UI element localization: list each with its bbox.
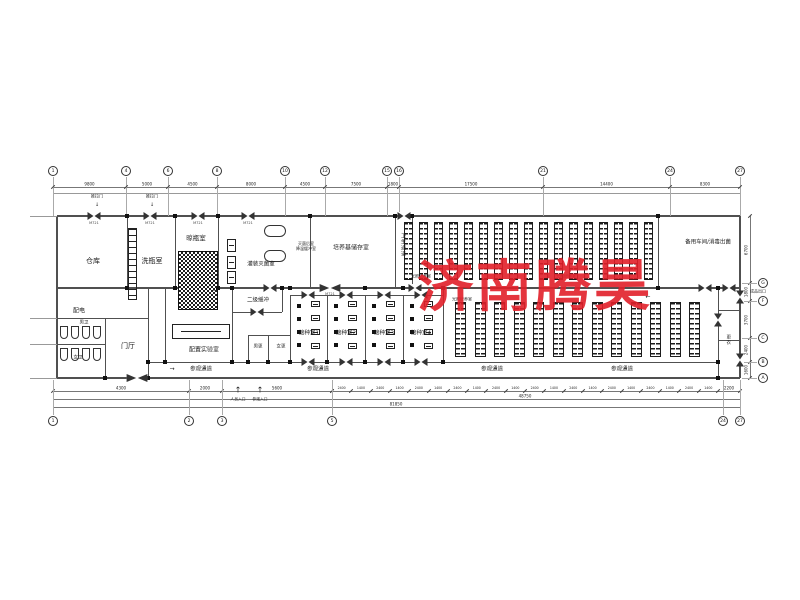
room-label-inoculation-4: 接种室4 [411,331,431,338]
dim-value-bot-s-8: 2400 [492,386,500,390]
shelf-rack-bottom-12 [689,302,700,357]
column-mark [103,376,107,380]
corridor-label-4: 参观通道 [611,367,633,374]
dim-value-bot-left-1: 2000 [200,386,210,391]
door-16 [378,358,391,366]
wc-stall-0-0 [60,326,68,339]
door-tag-4: M721 [243,221,253,225]
dim-value-top-1: 5000 [142,182,152,187]
wall-v-13 [282,288,283,312]
column-mark [216,214,220,218]
room-label-hygiene-corridor: 卫生通道 [400,233,406,257]
axis-bubble-bot-1: 2 [184,416,194,426]
column-mark [173,286,177,290]
wall-v-0 [56,216,58,378]
dim-value-bot-s-1: 1400 [357,386,365,390]
axis-bubble-top-9: 24 [665,166,675,176]
axis-leader-top-10 [740,177,741,216]
room-label-warehouse: 仓库 [86,257,100,265]
axis-bubble-top-10: 27 [735,166,745,176]
corridor-label-2: 参观通道 [307,367,329,374]
wall-v-9 [105,318,106,378]
wall-h-9 [718,310,740,311]
door-9 [251,308,264,316]
room-label-post-sterilize-note: 灭菌后室 降温缓冲室 [296,242,316,252]
filling-bench-2 [227,271,236,284]
corridor-label-1: 参观通道 [190,367,212,374]
wall-v-3 [175,216,176,288]
hatched-equipment-block [178,251,218,310]
axis-bubble-top-3: 8 [212,166,222,176]
dim-value-bot-s-3: 1400 [395,386,403,390]
door-14 [302,358,315,366]
dim-value-right-3: 2400 [744,345,749,355]
wall-v-5 [310,216,311,288]
inoc-equip-2-1 [372,317,376,321]
dim-value-right-1: 1800 [744,287,749,297]
axis-bubble-bot-2: 3 [217,416,227,426]
dim-value-right-0: 6700 [744,244,749,254]
dim-value-bot-s-5: 1400 [434,386,442,390]
label-sliding-door-2: 推拉门 [146,195,158,200]
axis-bubble-top-2: 6 [163,166,173,176]
door-tag-3: M721 [193,221,203,225]
door-v-1 [714,314,722,327]
door-5 [264,284,277,292]
room-label-womens-changing: 女更 [277,344,286,349]
corridor-arrow-2: → [212,288,217,295]
column-mark [125,286,129,290]
axis-bubble-right-2: C [758,333,768,343]
door-4 [398,212,411,220]
room-label-mens-changing: 男更 [254,344,263,349]
dim-total-mid: 48750 [519,394,532,399]
axis-leader-top-9 [670,177,671,216]
column-mark [401,286,405,290]
dim-value-bot-s-4: 2400 [415,386,423,390]
column-mark [401,360,405,364]
shelf-rack-bottom-11 [670,302,681,357]
dim-value-bot-s-14: 2400 [608,386,616,390]
column-mark [716,360,720,364]
axis-leader-bot-5 [740,380,741,415]
inoc-bench-1-3 [348,343,357,349]
axis-leader-right-0 [742,283,757,284]
wall-v-10 [148,288,149,378]
dim-value-bot-s-18: 2400 [685,386,693,390]
wc-stall-1-0 [60,348,68,361]
axis-bubble-top-7: 16 [394,166,404,176]
floor-plan: 仓库 洗瓶室 晾瓶室 灌装灭菌室 灭菌后室 降温缓冲室 培养基储存室 卫生通道 … [0,0,800,600]
label-visitor-entry: 参观入口 [252,398,267,403]
entry-arrow-visitor: ↑ [257,386,264,395]
dim-value-top-5: 7500 [351,182,361,187]
axis-leader-top-8 [543,177,544,216]
axis-bubble-right-0: G [758,278,768,288]
dim-line-bot-3 [53,407,740,408]
room-label-changing: 更衣 [725,335,730,346]
axis-leader-top-7 [399,177,400,216]
inoc-bench-3-3 [424,343,433,349]
dim-value-bot-s-16: 2400 [646,386,654,390]
inoc-equip-3-1 [410,317,414,321]
corridor-label-3: 参观通道 [481,367,503,374]
column-mark [393,214,397,218]
axis-bubble-bot-4: 24 [718,416,728,426]
axis-leader-right-4 [742,378,757,379]
dim-value-top-3: 8000 [246,182,256,187]
column-mark [146,360,150,364]
wall-h-4 [57,318,148,319]
inoc-bench-0-3 [311,343,320,349]
room-label-preparation-lab: 配置实验室 [189,346,219,353]
dim-value-top-8: 14400 [600,182,613,187]
wash-rack [128,228,137,300]
column-mark [410,214,414,218]
axis-bubble-top-5: 12 [320,166,330,176]
wall-v-14 [268,335,269,362]
corridor-arrow-1: → [169,366,174,373]
dim-value-bot-s-12: 2400 [569,386,577,390]
door-2 [192,212,205,220]
door-3 [242,212,255,220]
inoc-bench-2-0 [386,301,395,307]
leader-left-0 [30,216,57,217]
dim-line-bot-1 [53,391,740,392]
dim-value-top-7: 17500 [465,182,478,187]
axis-bubble-top-6: 15 [382,166,392,176]
column-mark [163,360,167,364]
sterilizer-machine-2 [264,250,286,262]
dim-value-bot-s-19: 1400 [704,386,712,390]
column-mark [363,360,367,364]
inoc-equip-3-3 [410,343,414,347]
axis-bubble-bot-3: 5 [327,416,337,426]
wall-h-8 [248,335,290,336]
dim-value-bot-s-11: 1400 [550,386,558,390]
dim-value-bot-s-13: 1400 [588,386,596,390]
door-8 [699,284,712,292]
leader-left-2 [30,344,57,345]
inoc-equip-3-0 [410,304,414,308]
dim-value-top-2: 4500 [187,182,197,187]
dim-total-full: 81850 [390,402,403,407]
column-mark [716,286,720,290]
wall-h-5 [57,344,105,345]
wall-v-8 [658,216,659,288]
axis-bubble-top-0: 1 [48,166,58,176]
axis-leader-bot-3 [332,380,333,415]
door-10 [302,291,315,299]
axis-leader-top-4 [285,177,286,216]
column-mark [308,214,312,218]
inoc-bench-0-0 [311,301,320,307]
room-label-bottle-drying: 晾瓶室 [186,235,206,243]
inoc-equip-2-0 [372,304,376,308]
axis-leader-top-0 [53,177,54,216]
dim-value-bot-s-17: 1400 [666,386,674,390]
room-label-spare-workshop: 备用车间/消毒出菌 [685,240,731,247]
axis-bubble-right-3: B [758,357,768,367]
sterilizer-machine-1 [264,225,286,237]
inoc-bench-2-1 [386,315,395,321]
axis-leader-top-1 [126,177,127,216]
label-staff-entry: 人员入口 [230,398,245,403]
axis-bubble-right-4: A [758,373,768,383]
inoc-bench-1-1 [348,315,357,321]
column-mark [441,360,445,364]
dim-line-right [750,216,751,378]
room-label-womens-wc: 女卫 [74,355,83,360]
wall-v-17 [327,295,328,362]
door-11 [340,291,353,299]
door-tag-1: M721 [89,221,99,225]
inoc-bench-0-1 [311,315,320,321]
wall-v-16 [290,295,291,362]
axis-leader-top-3 [217,177,218,216]
leader-left-1 [30,318,57,319]
dim-value-bot-s-0: 2400 [338,386,346,390]
wall-v-15 [248,335,249,362]
door-6 [320,284,341,292]
wall-v-6 [395,216,396,288]
dim-value-bot-s-6: 2400 [453,386,461,390]
axis-bubble-top-4: 10 [280,166,290,176]
door-1 [144,212,157,220]
axis-leader-right-2 [742,338,757,339]
wc-stall-1-2 [82,348,90,361]
axis-bubble-bot-5: 27 [735,416,745,426]
wall-v-12 [232,288,233,362]
room-label-filling-sterilization: 灌装灭菌室 [247,262,275,269]
wc-stall-0-2 [82,326,90,339]
sliding-door-arrow-1: ↓ [95,202,99,208]
room-label-inoculation-1: 接种室1 [299,331,319,338]
dim-value-top-0: 9800 [84,182,94,187]
door-17 [415,358,428,366]
inoc-equip-1-1 [334,317,338,321]
inoc-bench-1-0 [348,301,357,307]
column-mark [125,214,129,218]
room-label-secondary-buffer: 二级缓冲 [247,298,269,305]
wall-v-11 [165,288,166,362]
column-mark [266,360,270,364]
wc-stall-1-3 [93,348,101,361]
axis-leader-bot-0 [53,380,54,415]
column-mark [230,360,234,364]
inoc-bench-2-3 [386,343,395,349]
leader-left-3 [30,378,57,379]
dim-value-top-6: 1800 [388,182,398,187]
column-mark [363,286,367,290]
door-12 [378,291,391,299]
dim-value-right-4: 1600 [744,365,749,375]
inoc-equip-1-0 [334,304,338,308]
door-tag-2: M721 [145,221,155,225]
room-label-entrance-hall: 门厅 [121,342,135,350]
inoc-equip-2-3 [372,343,376,347]
inoc-equip-0-1 [297,317,301,321]
watermark-text: 济南腾昊 [417,240,654,323]
wall-v-19 [403,295,404,362]
room-label-medium-storage: 培养基储存室 [333,244,369,251]
inoc-equip-0-0 [297,304,301,308]
dim-value-bot-s-9: 1400 [511,386,519,390]
column-mark [246,360,250,364]
wall-v-21 [718,288,719,378]
axis-bubble-top-8: 21 [538,166,548,176]
dim-value-right-2: 3700 [744,314,749,324]
axis-leader-right-1 [742,301,757,302]
door-0 [88,212,101,220]
axis-bubble-right-1: F [758,296,768,306]
wall-v-18 [365,295,366,362]
inoc-equip-0-3 [297,343,301,347]
column-mark [288,360,292,364]
axis-leader-bot-1 [189,380,190,415]
door-19 [723,284,736,292]
dim-value-bot-s-2: 2400 [376,386,384,390]
column-mark [173,214,177,218]
axis-bubble-top-1: 4 [121,166,131,176]
dim-value-bot-left-3: 2200 [724,386,734,391]
filling-bench-0 [227,239,236,252]
door-18 [127,374,148,382]
dim-value-bot-s-7: 1400 [473,386,481,390]
column-mark [656,214,660,218]
filling-bench-1 [227,256,236,269]
column-mark [716,376,720,380]
room-label-inoculation-3: 接种室3 [374,331,394,338]
dim-value-top-9: 8300 [700,182,710,187]
axis-leader-right-3 [742,362,757,363]
room-label-power-distribution: 配电 [73,307,85,314]
column-mark [288,286,292,290]
dim-line-bot-2 [53,399,740,400]
column-mark [230,286,234,290]
entry-arrow-staff: ↑ [235,386,242,395]
sliding-door-arrow-2: ↓ [150,202,154,208]
column-mark [656,286,660,290]
lab-bench [172,324,230,339]
dim-value-bot-s-15: 1400 [627,386,635,390]
door-tag-5: M721 [325,292,335,296]
axis-leader-top-5 [325,177,326,216]
room-label-inoculation-2: 接种室2 [336,331,356,338]
wc-stall-0-1 [71,326,79,339]
dim-value-bot-left-2: 5600 [272,386,282,391]
axis-leader-bot-2 [222,380,223,415]
room-label-mens-wc: 男卫 [80,320,89,325]
dim-value-top-4: 4500 [300,182,310,187]
label-sliding-door-1: 推拉门 [91,195,103,200]
wc-stall-0-3 [93,326,101,339]
dim-value-bot-s-10: 2400 [531,386,539,390]
column-mark [325,360,329,364]
door-15 [340,358,353,366]
column-mark [280,286,284,290]
label-product-exit: 成品出口 [750,290,766,295]
room-label-bottle-washing: 洗瓶室 [142,257,163,265]
axis-bubble-bot-0: 1 [48,416,58,426]
axis-leader-top-2 [168,177,169,216]
dim-value-bot-left-0: 4300 [116,386,126,391]
wall-h-2 [57,377,740,379]
inoc-equip-1-3 [334,343,338,347]
